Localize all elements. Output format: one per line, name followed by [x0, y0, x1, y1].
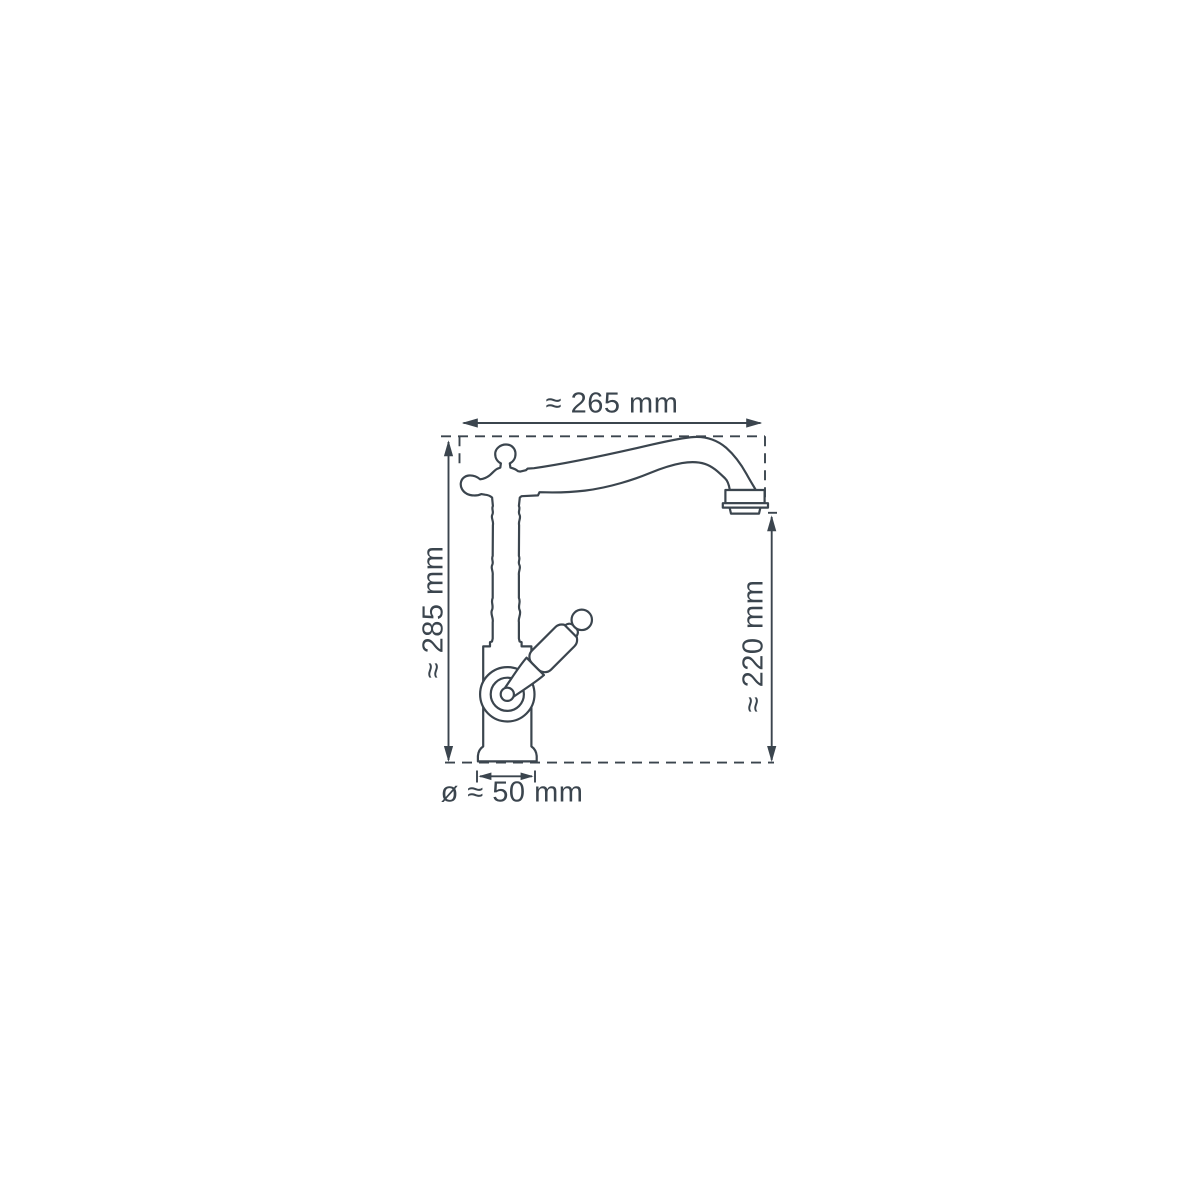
arrowhead-up-icon: [444, 440, 453, 456]
dimension-label-height-total: ≈ 285 mm: [418, 546, 450, 679]
arrowhead-down-icon: [444, 746, 453, 762]
faucet: [461, 437, 768, 761]
nut-lower-ring: [730, 508, 761, 514]
dimension-height-spout: ≈ 220 mm: [738, 513, 778, 762]
arrowhead-left-icon: [462, 418, 478, 427]
faucet-dimension-drawing: ≈ 265 mm ≈ 285 mm ≈ 220 mm ø ≈ 50 mm: [0, 0, 1200, 1200]
diagram-canvas: ≈ 265 mm ≈ 285 mm ≈ 220 mm ø ≈ 50 mm: [0, 0, 1200, 1200]
nut-upper: [725, 490, 764, 503]
arrowhead-up-icon: [767, 515, 776, 531]
valve-pivot-cap-circle: [501, 688, 514, 701]
dimension-label-height-spout: ≈ 220 mm: [738, 580, 770, 713]
dimension-label-base-diameter: ø ≈ 50 mm: [441, 777, 584, 809]
dimension-width-top: ≈ 265 mm: [462, 388, 762, 428]
spout-outlet-nut: [723, 490, 768, 514]
dimension-label-width: ≈ 265 mm: [546, 388, 679, 420]
dimension-base-diameter: ø ≈ 50 mm: [441, 771, 584, 809]
arrowhead-right-icon: [746, 418, 762, 427]
dimension-height-total: ≈ 285 mm: [418, 440, 454, 762]
arrowhead-down-icon: [767, 746, 776, 762]
